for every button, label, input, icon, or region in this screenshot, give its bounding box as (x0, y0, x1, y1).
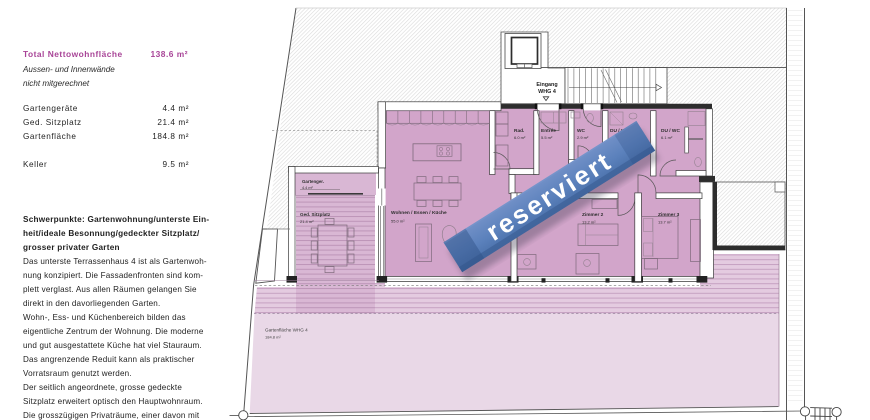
svg-text:4.4 m²: 4.4 m² (302, 186, 313, 190)
svg-text:Gartenfläche WHG 4: Gartenfläche WHG 4 (265, 328, 308, 333)
svg-text:13.2 m²: 13.2 m² (582, 220, 596, 225)
svg-text:Wohnen / Essen / Küche: Wohnen / Essen / Küche (391, 210, 447, 216)
svg-text:Entrée: Entrée (541, 128, 556, 134)
svg-text:Gartenger.: Gartenger. (302, 179, 324, 184)
svg-text:13.7 m²: 13.7 m² (658, 220, 672, 225)
svg-text:WC: WC (577, 128, 586, 134)
svg-text:Eingang: Eingang (536, 82, 557, 88)
svg-text:6.0 m²: 6.0 m² (514, 135, 526, 140)
svg-text:6.1 m²: 6.1 m² (661, 135, 673, 140)
svg-text:Ged. Sitzplatz: Ged. Sitzplatz (300, 212, 331, 217)
svg-text:Rad.: Rad. (514, 128, 524, 134)
svg-text:184.8 m²: 184.8 m² (265, 335, 281, 340)
svg-text:55.0 m²: 55.0 m² (391, 219, 405, 224)
svg-text:DU / WC: DU / WC (661, 128, 680, 134)
svg-text:Zimmer 2: Zimmer 2 (582, 212, 604, 218)
svg-text:Zimmer 3: Zimmer 3 (658, 212, 680, 218)
svg-text:2.9 m²: 2.9 m² (577, 135, 589, 140)
svg-text:WHG 4: WHG 4 (538, 89, 556, 95)
svg-text:5.5 m²: 5.5 m² (541, 135, 553, 140)
svg-text:21.4 m²: 21.4 m² (300, 219, 314, 224)
